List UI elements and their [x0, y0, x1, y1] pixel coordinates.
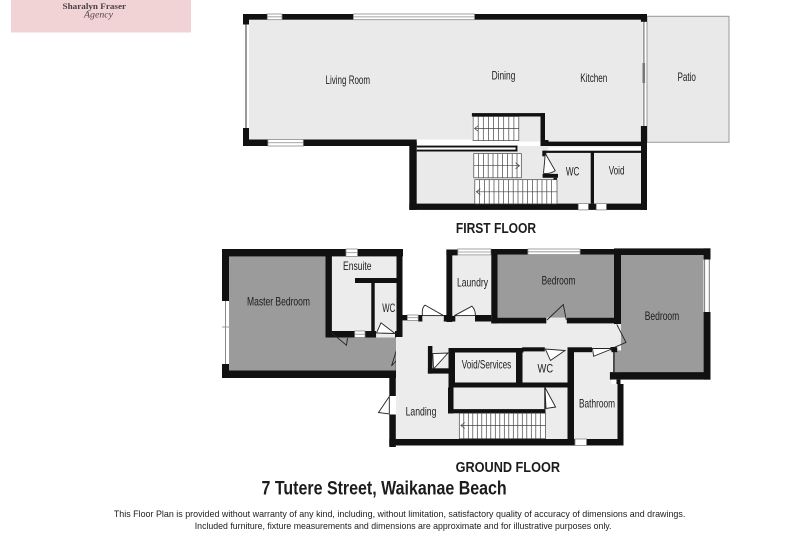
svg-text:Patio: Patio: [677, 70, 696, 84]
svg-text:Kitchen: Kitchen: [580, 71, 607, 85]
svg-text:Agency: Agency: [83, 9, 113, 19]
svg-text:7 Tutere Street, Waikanae Beac: 7 Tutere Street, Waikanae Beach: [262, 479, 507, 500]
svg-text:Laundry: Laundry: [457, 276, 488, 290]
svg-text:GROUND FLOOR: GROUND FLOOR: [456, 460, 561, 476]
svg-text:WC: WC: [382, 301, 395, 315]
svg-text:FIRST FLOOR: FIRST FLOOR: [456, 221, 537, 237]
svg-text:Master Bedroom: Master Bedroom: [247, 295, 310, 309]
svg-text:Void/Services: Void/Services: [462, 358, 512, 372]
svg-text:WC: WC: [538, 362, 554, 376]
svg-text:Living Room: Living Room: [326, 73, 371, 87]
svg-text:Landing: Landing: [406, 405, 437, 419]
svg-text:Bedroom: Bedroom: [542, 274, 576, 288]
svg-text:Ensuite: Ensuite: [343, 259, 372, 273]
svg-text:This Floor Plan is provided wi: This Floor Plan is provided without warr…: [114, 509, 686, 520]
svg-text:Bathroom: Bathroom: [579, 397, 615, 411]
svg-text:Dining: Dining: [492, 69, 516, 83]
svg-text:Bedroom: Bedroom: [645, 309, 680, 323]
svg-text:Void: Void: [609, 164, 625, 178]
svg-text:Included furniture, fixture me: Included furniture, fixture measurements…: [195, 521, 612, 532]
svg-text:WC: WC: [566, 165, 580, 179]
